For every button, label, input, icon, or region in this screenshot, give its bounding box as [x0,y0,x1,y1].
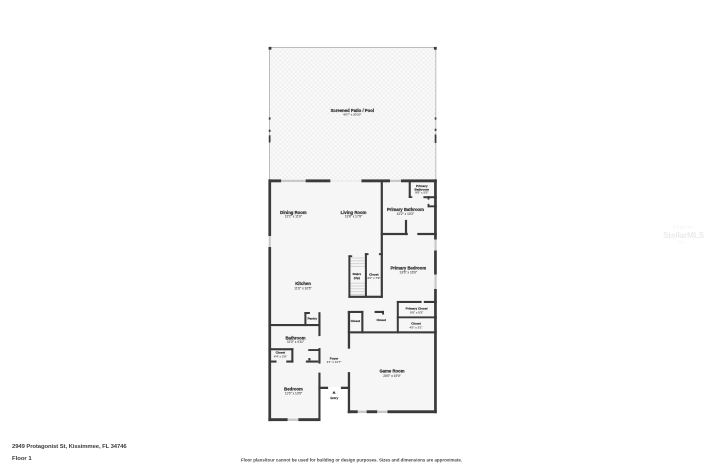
svg-text:Game Room: Game Room [379,369,404,374]
svg-text:40'7" x 30'10": 40'7" x 30'10" [343,112,361,116]
svg-text:StellarMLS: StellarMLS [663,231,705,240]
svg-text:(Up): (Up) [354,276,360,280]
svg-text:4'4" x 2'6": 4'4" x 2'6" [274,354,287,358]
svg-text:9'5" x 5'3": 9'5" x 5'3" [410,310,423,314]
svg-text:12'2" x 11'6": 12'2" x 11'6" [285,214,302,218]
svg-text:11'6" x 13'5": 11'6" x 13'5" [285,391,302,395]
svg-text:4'5" x 3'1": 4'5" x 3'1" [409,325,422,329]
svg-text:12'2" x 10'2": 12'2" x 10'2" [397,212,414,216]
svg-text:Kitchen: Kitchen [295,281,311,286]
svg-text:2949 Protagonist St, Kissimmee: 2949 Protagonist St, Kissimmee, FL 34746 [12,444,127,450]
svg-text:11'3" x 4'11": 11'3" x 4'11" [287,340,304,344]
svg-text:Floor plans/tour cannot be use: Floor plans/tour cannot be used for buil… [241,457,462,462]
svg-text:9'8" x 5'5": 9'8" x 5'5" [415,190,428,194]
svg-text:MLS: MLS [678,240,686,244]
svg-text:4'1" x 12'7": 4'1" x 12'7" [327,360,342,364]
svg-text:20'0" x 19'0": 20'0" x 19'0" [383,374,400,378]
svg-text:3'2" x 7'9": 3'2" x 7'9" [367,276,380,280]
svg-text:13'8" x 17'8": 13'8" x 17'8" [345,214,362,218]
svg-text:11'6" x 16'5": 11'6" x 16'5" [294,287,311,291]
svg-text:Entry: Entry [330,396,338,400]
svg-text:Pantry: Pantry [307,317,317,321]
svg-text:Closet: Closet [376,318,385,322]
svg-text:13'6" x 16'0": 13'6" x 16'0" [400,271,417,275]
svg-text:Floor 1: Floor 1 [12,456,32,462]
svg-text:Stellar: Stellar [673,225,694,230]
svg-text:Closet: Closet [351,319,360,323]
